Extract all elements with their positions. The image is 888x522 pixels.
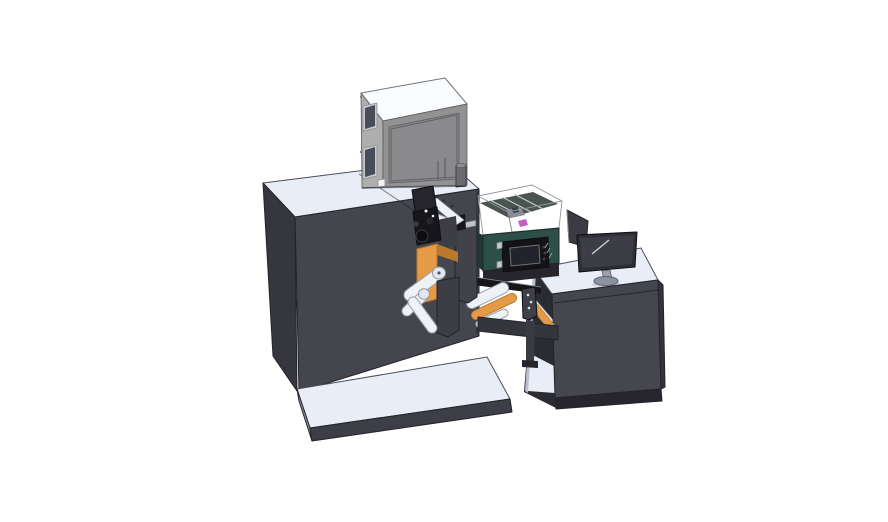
hinge-nub [360,151,362,153]
rewinder-arm-plate [437,277,459,337]
screw [451,205,454,208]
hmi-screen [510,245,540,266]
printhead-knob [427,218,434,225]
support-leg [526,320,535,363]
desk-front-face [552,280,661,398]
hmi-button [544,252,547,255]
exhaust-cylinder [456,165,466,187]
screw [443,200,446,203]
monitor-screen [580,235,634,268]
mount-tab [497,242,502,249]
bracket-dot [527,294,530,297]
hmi-button [543,258,546,261]
mount-tab [497,261,502,268]
printhead-gear [416,230,428,242]
side-window-glass [365,105,375,129]
small-access-plate [378,179,385,187]
bracket-dot [528,307,531,310]
support-foot [522,360,538,368]
cad-viewport [0,0,888,522]
roller-end-dot [437,271,440,274]
top-filter-box [360,78,467,188]
printhead-knob [413,221,419,227]
monitor-stand-base [594,277,618,286]
side-window-glass [365,147,375,177]
roller-end-cap [419,289,430,299]
printhead-highlight [425,210,428,213]
cad-render-svg [0,0,888,522]
bracket-dot [530,301,533,304]
exhaust-cylinder-top [456,163,466,167]
sensor-bracket [522,287,537,320]
hinge-nub [360,96,362,98]
printhead-highlight [432,215,435,218]
